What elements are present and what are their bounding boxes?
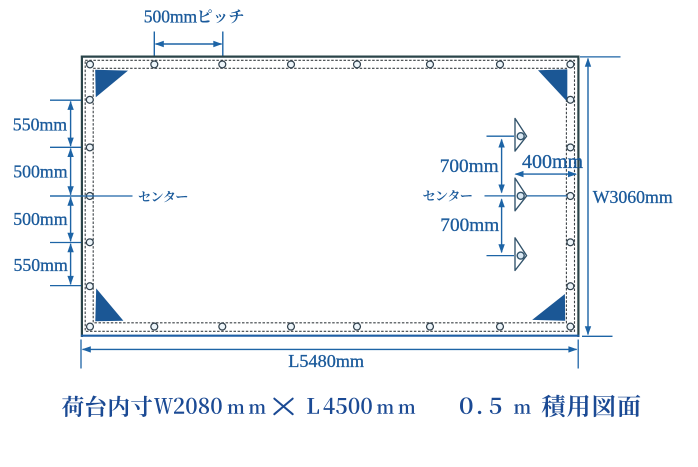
svg-text:W3060mm: W3060mm (593, 187, 673, 207)
svg-text:500mm: 500mm (144, 6, 198, 26)
svg-text:700mm: 700mm (440, 215, 499, 236)
svg-text:550mm: 550mm (14, 255, 69, 275)
svg-text:550mm: 550mm (13, 114, 68, 134)
svg-text:700mm: 700mm (440, 156, 499, 177)
svg-text:400mm: 400mm (522, 151, 584, 173)
svg-text:500mm: 500mm (13, 209, 68, 229)
svg-text:500mm: 500mm (13, 161, 68, 181)
svg-text:L5480mm: L5480mm (288, 351, 364, 371)
